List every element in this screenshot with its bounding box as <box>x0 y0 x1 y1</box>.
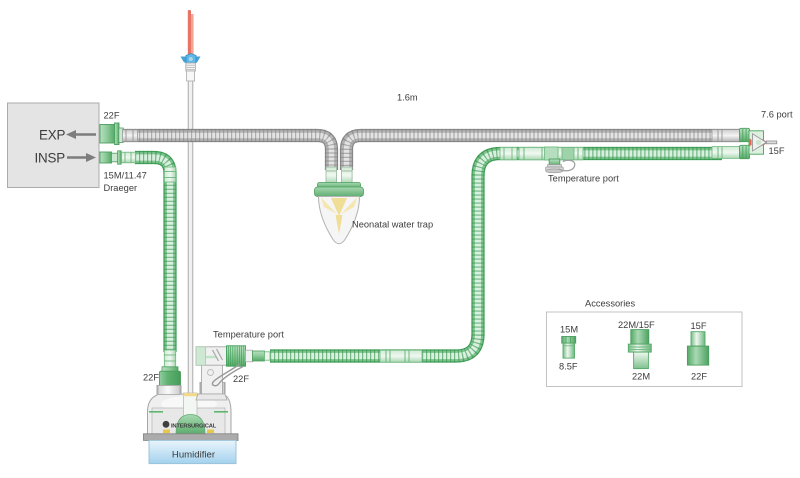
svg-text:22F: 22F <box>233 374 249 384</box>
svg-text:7.6 port: 7.6 port <box>761 110 793 120</box>
svg-text:22F: 22F <box>691 372 707 382</box>
svg-text:Draeger: Draeger <box>104 183 138 193</box>
svg-text:1.6m: 1.6m <box>397 93 418 103</box>
svg-text:Accessories: Accessories <box>585 299 635 309</box>
svg-text:Temperature port: Temperature port <box>548 174 619 184</box>
svg-text:22M/15F: 22M/15F <box>618 320 655 330</box>
svg-text:22F: 22F <box>104 111 120 121</box>
svg-text:15F: 15F <box>691 321 707 331</box>
svg-text:INTERSURGICAL: INTERSURGICAL <box>171 424 217 430</box>
svg-text:Neonatal water trap: Neonatal water trap <box>352 220 433 230</box>
svg-text:EXP: EXP <box>39 128 65 143</box>
svg-text:15F: 15F <box>769 146 785 156</box>
svg-text:22M: 22M <box>632 372 650 382</box>
svg-text:8.5F: 8.5F <box>559 362 578 372</box>
svg-text:22F: 22F <box>143 373 159 383</box>
svg-text:15M: 15M <box>560 325 578 335</box>
svg-text:INSP: INSP <box>35 150 66 165</box>
svg-text:Humidifier: Humidifier <box>172 450 216 461</box>
svg-text:15M/11.47: 15M/11.47 <box>104 171 147 181</box>
svg-text:Temperature port: Temperature port <box>213 329 284 339</box>
